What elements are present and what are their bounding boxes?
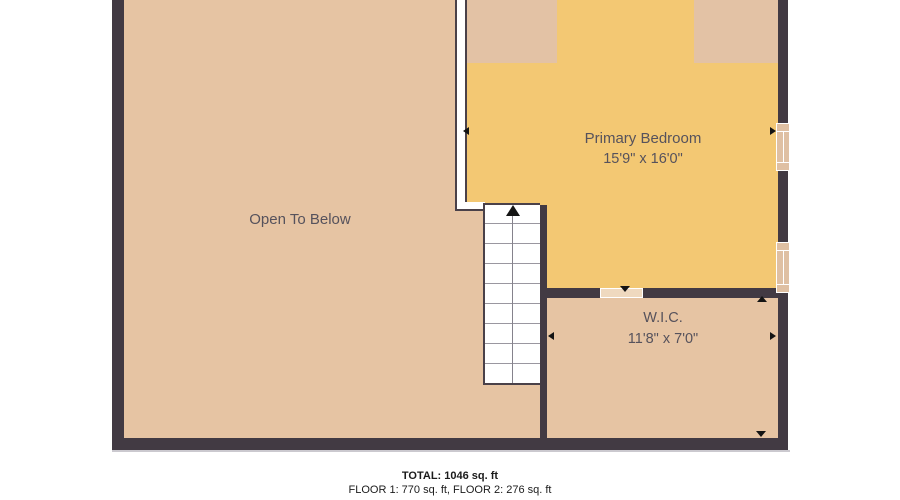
wall-bedroom-wic xyxy=(547,288,778,298)
dimension-arrow-icon xyxy=(757,296,767,302)
stairs-up-arrow-icon xyxy=(506,205,520,216)
room-label-primary-bedroom: Primary Bedroom xyxy=(543,130,743,148)
dimension-arrow-icon xyxy=(756,431,766,437)
railing-jog-line xyxy=(455,209,483,211)
room-label-wic: W.I.C. xyxy=(563,309,763,327)
dimension-arrow-icon xyxy=(548,332,554,340)
room-label-open-to-below: Open To Below xyxy=(180,211,420,229)
staircase xyxy=(483,203,540,385)
window-icon xyxy=(776,123,790,171)
wall-bottom xyxy=(112,438,788,450)
stairwell-edge-left xyxy=(483,203,485,385)
window-glass-line xyxy=(783,251,784,284)
wall-right xyxy=(778,0,788,450)
dimension-arrow-icon xyxy=(620,286,630,292)
wall-stair-right xyxy=(540,205,547,438)
footer-total-area: TOTAL: 1046 sq. ft xyxy=(0,470,900,482)
window-frame-line xyxy=(777,162,789,163)
room-dims-primary-bedroom: 15'9" x 16'0" xyxy=(543,150,743,168)
footer-floor-areas: FLOOR 1: 770 sq. ft, FLOOR 2: 276 sq. ft xyxy=(0,484,900,496)
dimension-arrow-icon xyxy=(770,127,776,135)
railing-line-right xyxy=(465,0,467,202)
window-icon xyxy=(776,242,790,293)
floor-patch-below-stairs xyxy=(455,211,483,438)
wall-shadow xyxy=(112,450,790,452)
dimension-arrow-icon xyxy=(463,127,469,135)
railing-line-left xyxy=(455,0,457,211)
window-frame-line xyxy=(777,284,789,285)
stair-direction-line xyxy=(512,216,513,385)
floorplan-canvas: Open To Below Primary Bedroom 15'9" x 16… xyxy=(0,0,900,500)
closet-area-right xyxy=(694,0,778,63)
window-glass-line xyxy=(783,132,784,162)
room-dims-wic: 11'8" x 7'0" xyxy=(563,330,763,348)
closet-area-left xyxy=(467,0,557,63)
wall-left xyxy=(112,0,124,450)
stairwell-edge-bottom xyxy=(483,383,540,385)
dimension-arrow-icon xyxy=(770,332,776,340)
